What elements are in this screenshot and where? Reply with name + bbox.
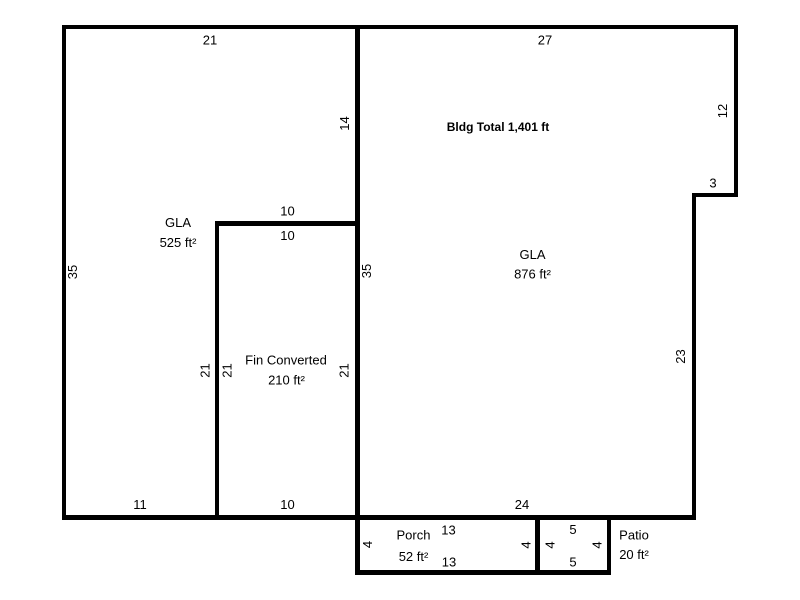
svg-text:876 ft²: 876 ft² xyxy=(514,267,552,282)
svg-text:5: 5 xyxy=(569,555,576,570)
svg-text:21: 21 xyxy=(220,363,235,377)
svg-text:GLA: GLA xyxy=(165,215,191,230)
svg-text:21: 21 xyxy=(337,363,352,377)
svg-text:13: 13 xyxy=(441,523,455,538)
svg-text:20 ft²: 20 ft² xyxy=(619,547,649,562)
svg-text:11: 11 xyxy=(133,497,147,512)
svg-text:Porch: Porch xyxy=(397,528,431,543)
svg-text:35: 35 xyxy=(359,264,374,278)
svg-text:Patio: Patio xyxy=(619,528,649,543)
svg-text:21: 21 xyxy=(198,363,213,377)
svg-text:4: 4 xyxy=(590,541,605,548)
svg-text:5: 5 xyxy=(569,522,576,537)
svg-text:525 ft²: 525 ft² xyxy=(160,235,198,250)
svg-text:10: 10 xyxy=(280,497,294,512)
svg-text:3: 3 xyxy=(709,176,716,191)
svg-text:52 ft²: 52 ft² xyxy=(399,549,429,564)
svg-text:24: 24 xyxy=(515,497,529,512)
svg-text:35: 35 xyxy=(65,265,80,279)
svg-text:210 ft²: 210 ft² xyxy=(268,373,306,388)
svg-text:13: 13 xyxy=(442,555,456,570)
svg-text:21: 21 xyxy=(203,33,217,48)
svg-text:Bldg Total 1,401 ft: Bldg Total 1,401 ft xyxy=(447,120,549,134)
svg-text:14: 14 xyxy=(337,116,352,130)
svg-text:27: 27 xyxy=(538,33,552,48)
svg-text:10: 10 xyxy=(280,204,294,219)
svg-text:12: 12 xyxy=(715,104,730,118)
svg-text:23: 23 xyxy=(673,349,688,363)
svg-text:GLA: GLA xyxy=(519,247,545,262)
svg-text:4: 4 xyxy=(360,541,375,548)
svg-text:10: 10 xyxy=(280,228,294,243)
svg-text:4: 4 xyxy=(519,541,534,548)
svg-text:4: 4 xyxy=(543,541,558,548)
svg-text:Fin Converted: Fin Converted xyxy=(245,353,327,368)
